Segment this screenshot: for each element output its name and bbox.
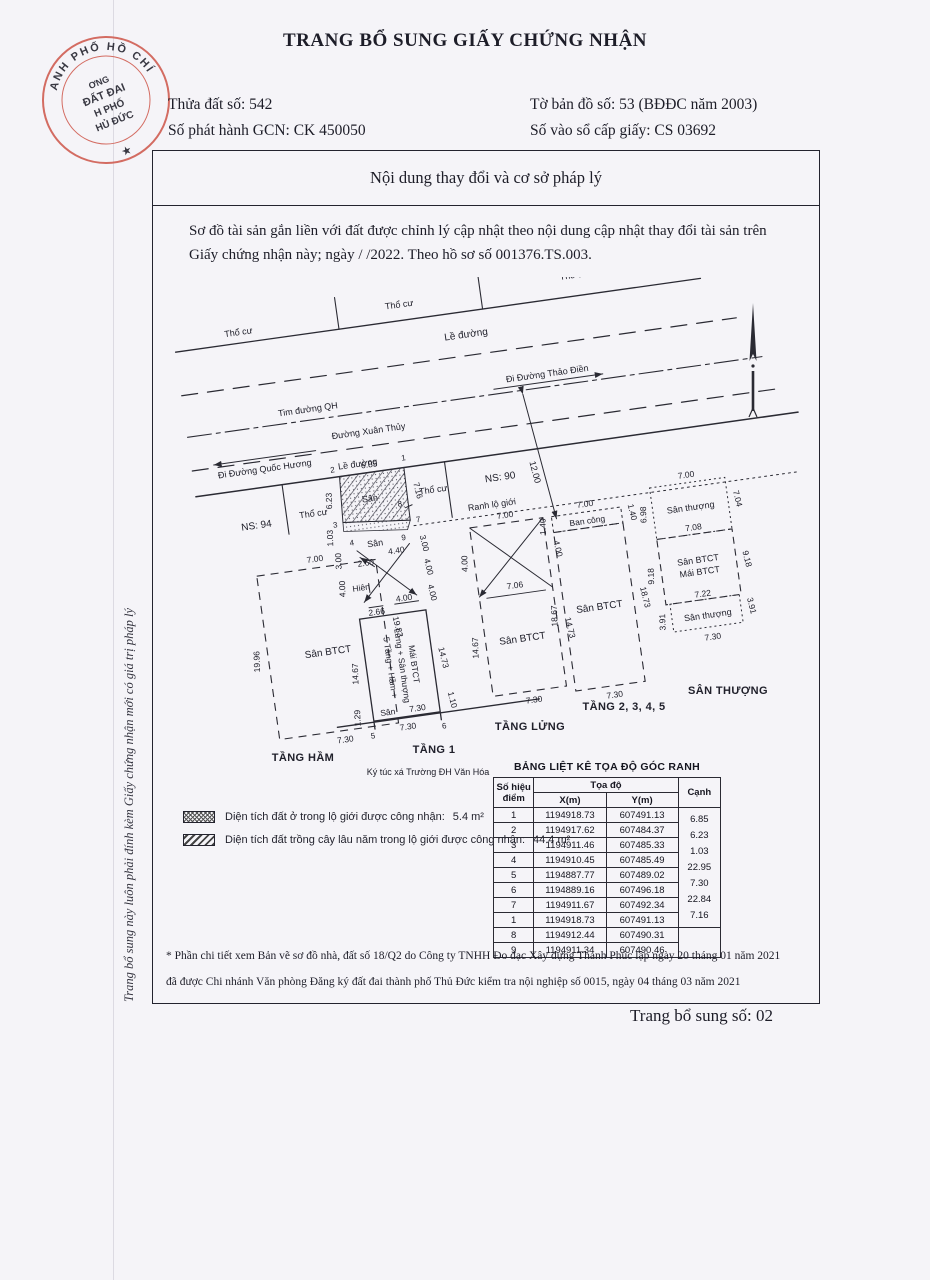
north-arrow-icon [749, 303, 757, 417]
dim-7-08: 7.08 [685, 521, 703, 533]
edge-length-column: 6.856.23 1.0322.95 7.3022.84 7.16 [678, 808, 720, 928]
rf-terrace-top-label: Sân thượng [666, 499, 715, 516]
certificate-supplement-page: ANH PHỐ HỒ CHÍ MINH ƠNG ĐẤT ĐAI H PHỐ HỦ… [0, 0, 930, 1280]
dim-7-30-rear-a: 7.30 [409, 702, 427, 714]
point-2: 2 [330, 465, 336, 475]
dim-18-73: 18.73 [638, 586, 653, 609]
point-4: 4 [349, 538, 355, 548]
point-1: 1 [401, 453, 407, 463]
stamp-star: ★ [121, 145, 133, 159]
dim-6-98: 6.98 [638, 506, 649, 523]
dim-mz-7-30: 7.30 [525, 694, 543, 706]
fl-san-btct-label: Sân BTCT [576, 599, 624, 616]
roof-terrace-plan: 7.00 Sân thượng 6.98 7.04 7.08 Sân BTCT … [631, 462, 764, 650]
content-box: Nội dung thay đổi và cơ sở pháp lý Sơ đồ… [152, 150, 820, 1004]
dim-4-00-left: 4.00 [337, 580, 348, 597]
dim-rf-7-00: 7.00 [677, 469, 695, 481]
col-header-y: Y(m) [606, 793, 678, 808]
zone-label: Thổ cư [384, 298, 414, 312]
road-edge-dashed-top [182, 318, 737, 396]
dim-1-10: 1.10 [446, 690, 460, 709]
registry-book-number: Số vào sổ cấp giấy: CS 03692 [530, 118, 757, 144]
to-quoc-huong-label: Đi Đường Quốc Hương [217, 457, 312, 480]
dim-1-40-l: 1.40 [537, 518, 548, 535]
legend-label: Diện tích đất ở trong lộ giới được công … [225, 811, 445, 823]
dim-9-18-r: 9.18 [740, 550, 754, 569]
dim-19-96: 19.96 [251, 651, 262, 673]
dim-1-03: 1.03 [325, 529, 336, 546]
parcel-ns90-label: NS: 90 [484, 470, 516, 485]
dim-4-40: 4.40 [387, 544, 405, 556]
dim-3-91-l: 3.91 [657, 613, 668, 630]
dim-14-73: 14.73 [436, 646, 451, 669]
paper-crease-line [113, 0, 114, 1280]
road-width-dimension [523, 392, 557, 521]
dim-19-83: 19.83 [391, 615, 406, 638]
mezzanine-caption: TẦNG LỬNG [495, 720, 565, 733]
dim-7-06: 7.06 [506, 579, 524, 591]
dim-fl-7-30: 7.30 [606, 688, 624, 700]
map-sheet-number: Tờ bản đồ số: 53 (BĐĐC năm 2003) [530, 92, 757, 118]
rf-terrace-bottom-label: Sân thượng [683, 607, 732, 624]
point-5: 5 [370, 731, 376, 741]
dim-mz-14-73: 14.73 [563, 616, 578, 639]
mezzanine-plan: 7.00 4.00 4.00 7.06 Sân BTCT 14.67 14.73… [451, 502, 587, 712]
footnote-line-2: đã được Chi nhánh Văn phòng Đăng ký đất … [166, 976, 806, 988]
floor1-caption: TẦNG 1 [413, 743, 456, 756]
basement-caption: TẦNG HẦM [272, 751, 334, 764]
dormitory-caption: Ký túc xá Trường ĐH Văn Hóa [367, 767, 489, 777]
col-header-edge: Cạnh [678, 778, 720, 808]
far-frontage-line [176, 278, 701, 352]
dim-bs-7-30: 7.30 [336, 733, 354, 745]
point-3: 3 [332, 520, 338, 530]
roof-caption: SÂN THƯỢNG [688, 684, 768, 697]
coordinate-table: Số hiệuđiểm Tọa độ Cạnh X(m) Y(m) 111949… [493, 777, 721, 958]
dim-7-30-rear-b: 7.30 [399, 720, 417, 732]
dim-mz-4-00-r: 4.00 [551, 539, 565, 558]
col-header-coord: Tọa độ [534, 778, 678, 793]
cadastral-sketch: Thổ cư Thổ cư Thổ cư Lề đường Tim đường … [153, 277, 817, 797]
legend-value: 5.4 m² [453, 811, 484, 823]
col-header-point: Số hiệuđiểm [494, 778, 534, 808]
road-edge-dashed-bottom [192, 389, 776, 471]
dim-7-16: 7.16 [411, 481, 425, 500]
page-title: TRANG BỔ SUNG GIẤY CHỨNG NHẬN [0, 30, 930, 52]
dim-18-67: 18.67 [549, 605, 560, 627]
point-9: 9 [401, 533, 407, 543]
dim-14-67: 14.67 [350, 663, 361, 685]
dim-7-04: 7.04 [731, 489, 745, 508]
coordinate-table-section: BẢNG LIỆT KÊ TỌA ĐỘ GÓC RANH Số hiệuđiểm… [493, 761, 721, 958]
rear-yard-label: Sân [380, 706, 397, 718]
legend-label: Diện tích đất trồng cây lâu năm trong lộ… [225, 834, 525, 846]
amendment-paragraph: Sơ đồ tài sản gắn liền với đất được chỉn… [189, 219, 785, 267]
dim-3-91-r: 3.91 [745, 596, 759, 615]
subject-lot [336, 467, 415, 538]
dim-2-60: 2.60 [357, 557, 375, 569]
road-shoulder-label: Lề đường [443, 326, 488, 344]
bs-san-btct-label: Sân BTCT [304, 644, 352, 661]
zone-label: Thổ cư [559, 277, 589, 282]
table-row: 81194912.44607490.31 [494, 928, 721, 943]
dim-bs-7-00: 7.00 [306, 553, 324, 565]
dim-fl-7-00: 7.00 [576, 498, 594, 510]
road-centerline [188, 357, 762, 438]
content-box-title: Nội dung thay đổi và cơ sở pháp lý [153, 151, 819, 206]
point-7: 7 [415, 515, 421, 525]
dim-4-00-right-a: 4.00 [422, 557, 436, 576]
zone-label: Thổ cư [224, 325, 254, 339]
dim-mz-7-00: 7.00 [496, 509, 514, 521]
dim-6-85: 6.85 [360, 458, 378, 470]
issue-number: Số phát hành GCN: CK 450050 [168, 118, 366, 144]
street-name-label: Đường Xuân Thủy [331, 421, 406, 441]
upper-floors-caption: TẦNG 2, 3, 4, 5 [582, 700, 665, 713]
crosshatch-swatch-icon [183, 811, 215, 823]
dim-3-00-left: 3.00 [333, 553, 344, 570]
dim-6-23: 6.23 [324, 492, 335, 509]
dim-9-18-l: 9.18 [646, 568, 657, 585]
parcel-ns94-label: NS: 94 [241, 518, 273, 533]
supplement-page-number: Trang bổ sung số: 02 [630, 1006, 773, 1026]
coordinate-table-title: BẢNG LIỆT KÊ TỌA ĐỘ GÓC RANH [493, 761, 721, 773]
to-thao-dien-label: Đi Đường Thảo Điền [505, 363, 589, 384]
mz-san-btct-label: Sân BTCT [499, 630, 547, 647]
dim-4-00-right-b: 4.00 [426, 583, 440, 602]
dim-road-width: 12.00 [527, 460, 542, 484]
dim-3-00-right: 3.00 [418, 534, 432, 553]
dim-mz-14-67: 14.67 [470, 637, 481, 659]
porch-label: Hiên [352, 581, 371, 593]
side-margin-note: Trang bổ sung này luôn phải đính kèm Giấ… [122, 462, 137, 1002]
dim-mz-4-00-l: 4.00 [459, 555, 470, 572]
planned-centerline-label: Tim đường QH [277, 400, 338, 418]
col-header-x: X(m) [534, 793, 606, 808]
diagonal-hatch-swatch-icon [183, 834, 215, 846]
footnote-line-1: * Phần chi tiết xem Bản vẽ sơ đồ nhà, đấ… [166, 950, 806, 962]
point-6: 6 [441, 721, 447, 731]
table-row: 11194918.73607491.13 6.856.23 1.0322.95 … [494, 808, 721, 823]
parcel-number: Thửa đất số: 542 [168, 92, 366, 118]
dim-7-22: 7.22 [694, 587, 712, 599]
yard-label: Sân [367, 537, 384, 549]
dim-rf-7-30: 7.30 [704, 630, 722, 642]
dim-1-29: 1.29 [352, 709, 363, 726]
